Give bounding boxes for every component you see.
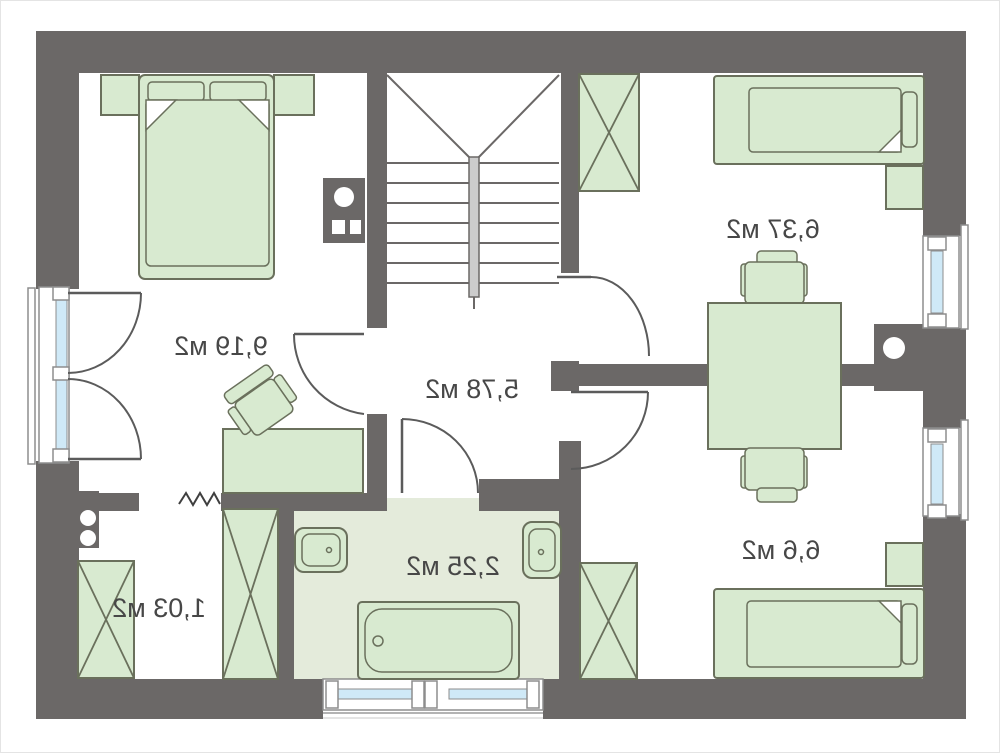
bedroom-left-furniture [101, 75, 363, 505]
window-sill-outer [961, 420, 968, 520]
wardrobe [223, 509, 278, 679]
nightstand [886, 166, 923, 209]
wall-right-upper [923, 31, 966, 236]
wardrobe [579, 74, 639, 191]
chimney-right [874, 324, 923, 391]
door-bedroom-left [294, 334, 364, 414]
pillow [902, 92, 917, 147]
area-label-bedroom-left: 9,19 м2 [174, 331, 268, 361]
blanket [146, 100, 269, 266]
staircase [387, 75, 559, 309]
desk [223, 429, 363, 493]
area-label-bathroom: 2,25 м2 [406, 551, 500, 581]
nightstand [101, 75, 139, 115]
sink [295, 528, 347, 572]
chimney-storage [79, 491, 99, 548]
window-right-bottom [923, 420, 968, 520]
area-label-storage: 1,03 м2 [112, 593, 206, 623]
handrail [469, 157, 479, 297]
chair [741, 448, 807, 502]
floor-plan-canvas: 9,19 м2 5,78 м2 6,37 м2 6,6 м2 1,03 м2 2… [0, 0, 1000, 753]
window-sill-outer [961, 225, 968, 329]
double-bed [139, 75, 274, 279]
stairwell-wall-right [561, 73, 579, 273]
wardrobe [580, 563, 637, 679]
wall-hall-bath-top [479, 479, 559, 511]
mattress [749, 88, 901, 152]
stair-cut-line [387, 75, 471, 159]
stair-cut-line [477, 75, 559, 159]
pillow [148, 82, 204, 101]
window-bathroom [323, 679, 543, 718]
door-room-bottom-right [571, 392, 648, 469]
area-label-hall: 5,78 м2 [425, 374, 519, 404]
wall-right-middle [923, 328, 966, 428]
wall-bottom-right [543, 679, 966, 719]
wall-right-lower [923, 514, 966, 719]
pillow [210, 82, 266, 101]
chimney-bedroom [323, 178, 365, 243]
area-label-room-bottom-right: 6,6 м2 [742, 535, 821, 565]
wall-bottom-left [36, 679, 323, 719]
window-sill-outer [28, 288, 35, 464]
stairwell-wall-left [367, 73, 387, 328]
door-room-top-right [557, 277, 649, 356]
mattress [747, 601, 901, 667]
chair-back [757, 488, 797, 502]
wall-left-lower [36, 461, 79, 719]
sink [523, 522, 561, 578]
nightstand [886, 543, 923, 586]
desk-double [708, 303, 841, 449]
bathtub [358, 602, 519, 679]
wall-top [36, 31, 966, 73]
wall-left-upper [36, 31, 79, 289]
window-left [28, 287, 141, 464]
wall-storage-bath [278, 511, 294, 679]
window-right-top [923, 225, 968, 329]
pillow [902, 604, 917, 664]
single-bed [714, 76, 924, 164]
chair [741, 251, 807, 304]
single-bed [714, 589, 924, 678]
area-label-room-top-right: 6,37 м2 [726, 214, 820, 244]
chair-seat [745, 262, 804, 304]
room-top-right-furniture [579, 74, 924, 304]
nightstand [274, 75, 314, 115]
wall-bath-right [559, 441, 581, 679]
door-bathroom [402, 419, 478, 493]
radiator-symbol [179, 493, 220, 505]
chair-seat [745, 448, 804, 490]
